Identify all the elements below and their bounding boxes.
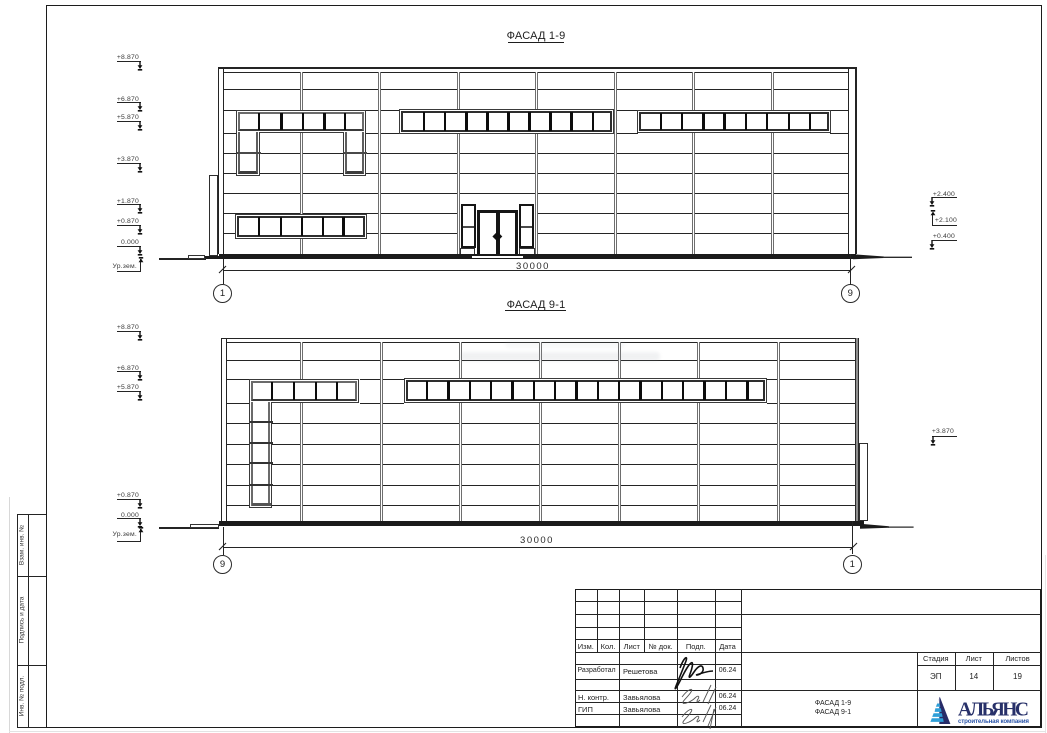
svg-text:строительная компания: строительная компания [958,718,1029,725]
